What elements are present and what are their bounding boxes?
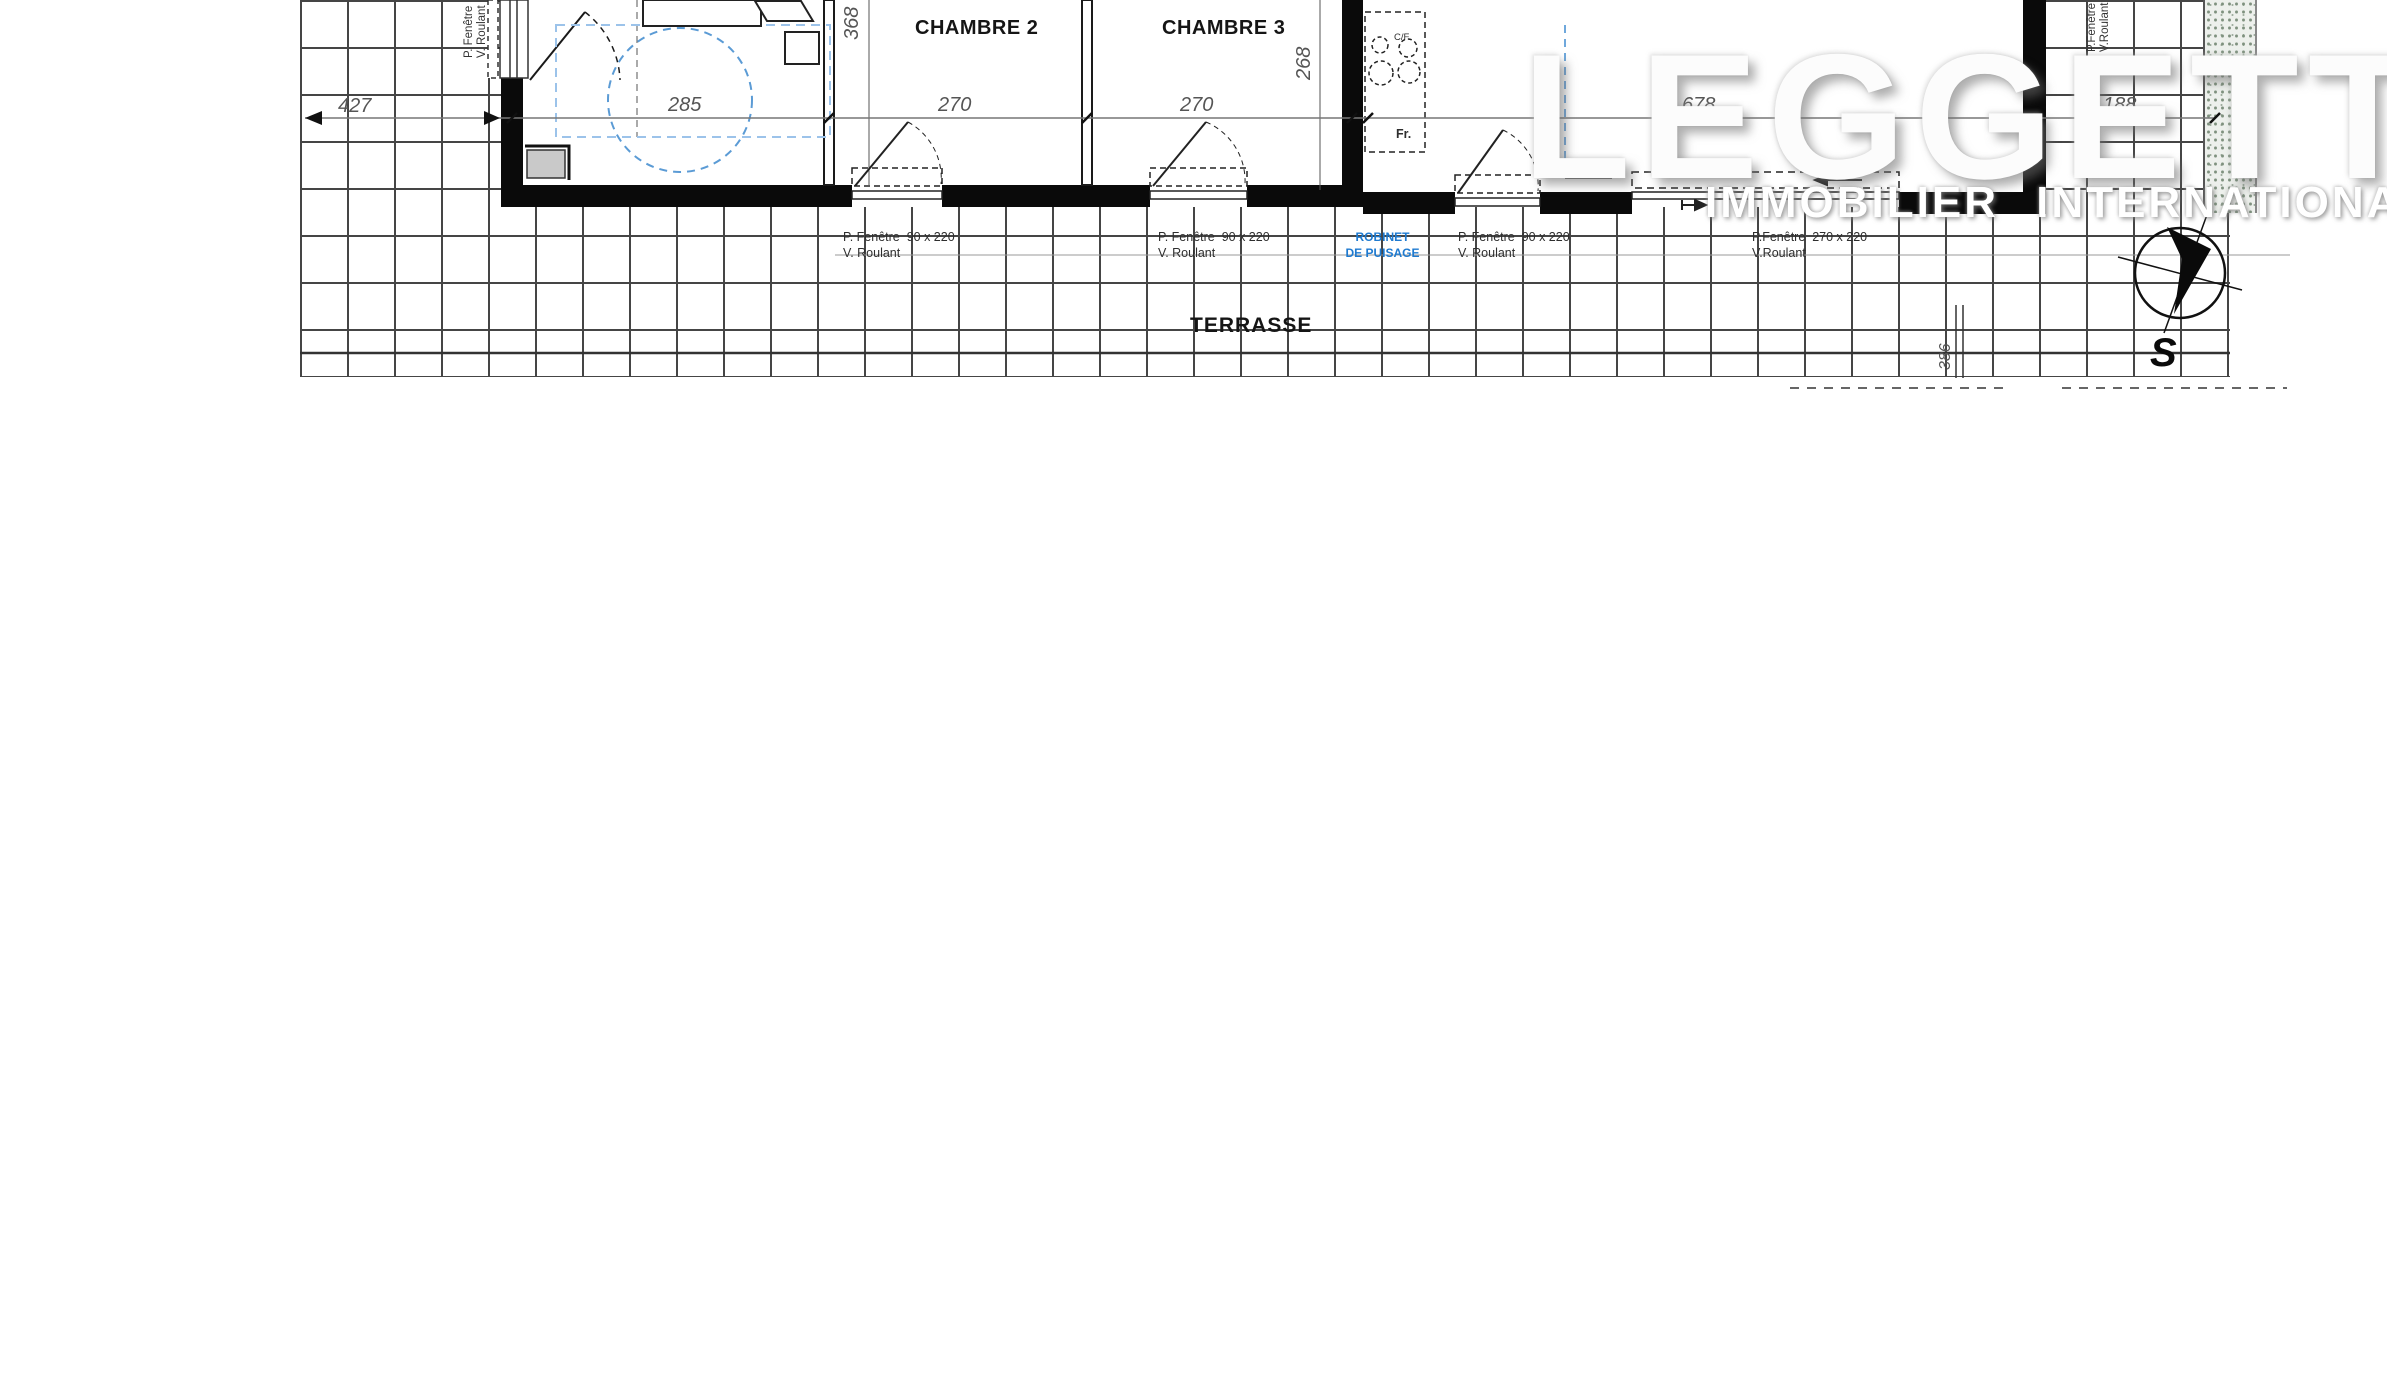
floorplan-canvas: 427 285 270 270 678 188 368 268 386 S CH… [0, 0, 2387, 1385]
fridge-label: Fr. [1396, 126, 1411, 142]
leggett-watermark-tagline: IMMOBILIER INTERNATIONAL [1705, 178, 2387, 228]
dim-386: 386 [1937, 343, 1954, 370]
west-window-text-1: P. Fenêtre [463, 6, 475, 58]
window-annotation: P. Fenêtre 90 x 220V. Roulant [1458, 229, 1570, 261]
dim-285: 285 [667, 94, 702, 116]
window-size-text: P. Fenêtre 90 x 220 [1458, 230, 1570, 244]
shutter-text: V.Roulant [1752, 245, 1867, 261]
hob-label: C/F [1394, 30, 1409, 46]
west-window-annotation: P. FenêtreV. Roulant [463, 5, 489, 58]
entry-door-swing [530, 12, 620, 80]
dim-268: 268 [1293, 47, 1315, 81]
shutter-text: V. Roulant [1458, 245, 1570, 261]
dim-427: 427 [338, 95, 372, 117]
tap-text-1: ROBINET [1356, 230, 1410, 244]
window-size-text: P. Fenêtre 90 x 220 [1158, 230, 1270, 244]
shutter-text: V. Roulant [1158, 245, 1270, 261]
room-label-chambre2: CHAMBRE 2 [915, 17, 1038, 40]
dim-270-ch3: 270 [1179, 94, 1213, 116]
compass-south-label: S [2150, 331, 2177, 375]
bed [643, 0, 819, 64]
tap-annotation: ROBINETDE PUISAGE [1330, 229, 1435, 261]
window-size-text: P.Fenêtre 270 x 220 [1752, 230, 1867, 244]
room-label-chambre3: CHAMBRE 3 [1162, 17, 1285, 40]
window-annotation: P. Fenêtre 90 x 220V. Roulant [1158, 229, 1270, 261]
tap-text-2: DE PUISAGE [1330, 245, 1435, 261]
window-annotation: P.Fenêtre 270 x 220V.Roulant [1752, 229, 1867, 261]
west-window [488, 0, 528, 78]
west-window-text-2: V. Roulant [476, 5, 488, 58]
shower-tray [525, 146, 569, 180]
dim-270-ch2: 270 [937, 94, 971, 116]
window-annotation: P. Fenêtre 90 x 220V. Roulant [843, 229, 955, 261]
room-label-terrasse: TERRASSE [1190, 314, 1312, 338]
dim-368: 368 [841, 7, 863, 40]
compass-rose-icon: S [2118, 212, 2242, 375]
window-w2 [852, 122, 942, 199]
window-size-text: P. Fenêtre 90 x 220 [843, 230, 955, 244]
shutter-text: V. Roulant [843, 245, 955, 261]
window-w3 [1150, 122, 1247, 199]
